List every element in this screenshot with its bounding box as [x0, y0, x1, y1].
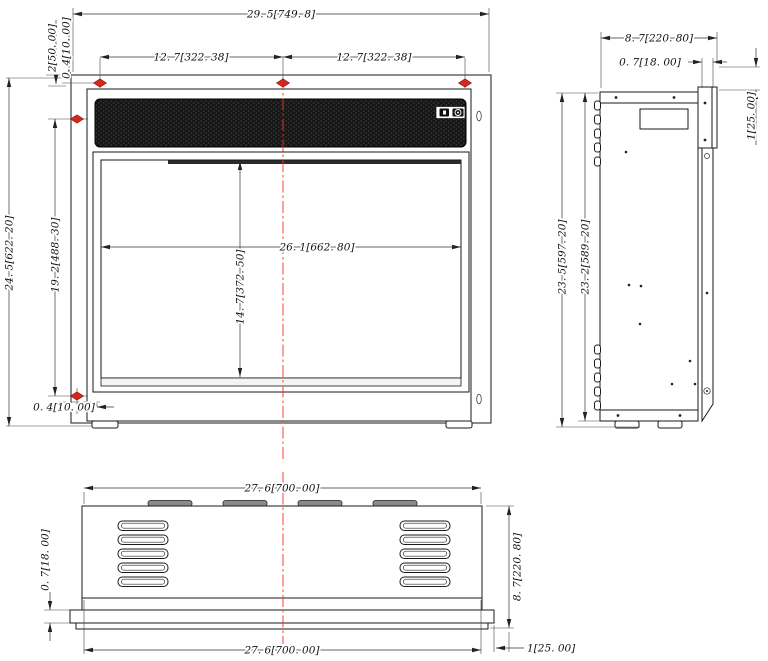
front-foot-right — [446, 421, 472, 428]
bottom-lower-step — [76, 623, 488, 629]
display-button-slot — [443, 111, 446, 115]
dim-bottom-flange-offset: 1[25. 00] — [527, 643, 576, 655]
dim-bottom-flange-thickness: 0. 7[18. 00] — [40, 528, 52, 591]
dim-front-top-inset: 2[50. 00] — [47, 23, 59, 73]
dim-bottom-width-bottom: 27. 6[700. 00] — [244, 645, 321, 657]
dim-front-overall-width: 29. 5[749. 8] — [246, 9, 316, 21]
side-view: 8. 7[220. 80] 0. 7[18. 00] 1[25. 00] 23.… — [556, 32, 760, 428]
dim-front-bottom-hole-offset: 0. 4[10. 00] — [33, 402, 96, 414]
dim-side-body-height: 23. 2[589. 20] — [580, 219, 592, 296]
bottom-view: 27. 6[700. 00] 27. 6[700. 00] 8. 7[220. … — [40, 472, 577, 657]
front-view: 29. 5[749. 8] 12. 7[322. 38] 12. 7[322. … — [4, 8, 492, 462]
side-body — [600, 92, 698, 421]
flange-slot-bottom — [477, 394, 482, 404]
dim-front-opening-height: 14. 7[372. 50] — [235, 249, 247, 325]
side-mount-bracket — [698, 87, 717, 159]
dim-front-top-hole-offset: 0. 4[10. 00] — [61, 16, 73, 79]
front-foot-left — [92, 421, 118, 428]
dim-front-hole-spacing-left: 12. 7[322. 38] — [154, 52, 230, 64]
power-button-dot — [457, 112, 459, 114]
heater-bar — [168, 161, 461, 165]
dim-side-flange-depth: 0. 7[18. 00] — [619, 57, 682, 69]
side-foot-right — [658, 421, 682, 428]
window-sill — [101, 378, 461, 386]
dim-front-side-hole-spacing: 19. 2[488. 30] — [50, 217, 62, 293]
dim-front-hole-spacing-right: 12. 7[322. 38] — [337, 52, 413, 64]
dim-front-opening-width: 26. 1[662. 80] — [279, 242, 356, 254]
top-grille — [95, 99, 466, 147]
dim-bottom-overall-depth: 8. 7[220. 80] — [512, 532, 524, 601]
bottom-step — [82, 598, 482, 610]
technical-drawing-page: 29. 5[749. 8] 12. 7[322. 38] 12. 7[322. … — [0, 0, 768, 661]
dim-side-overall-height: 23. 5[597. 20] — [557, 219, 569, 296]
bottom-flange — [70, 610, 494, 623]
dim-side-overall-depth: 8. 7[220. 80] — [625, 33, 694, 45]
dim-front-overall-height: 24. 5[622. 20] — [4, 215, 16, 292]
dim-side-bracket-offset: 1[25. 00] — [746, 91, 758, 140]
flange-slot-top — [477, 111, 482, 121]
dim-bottom-width-top: 27. 6[700. 00] — [244, 483, 321, 495]
control-panel — [436, 107, 465, 119]
